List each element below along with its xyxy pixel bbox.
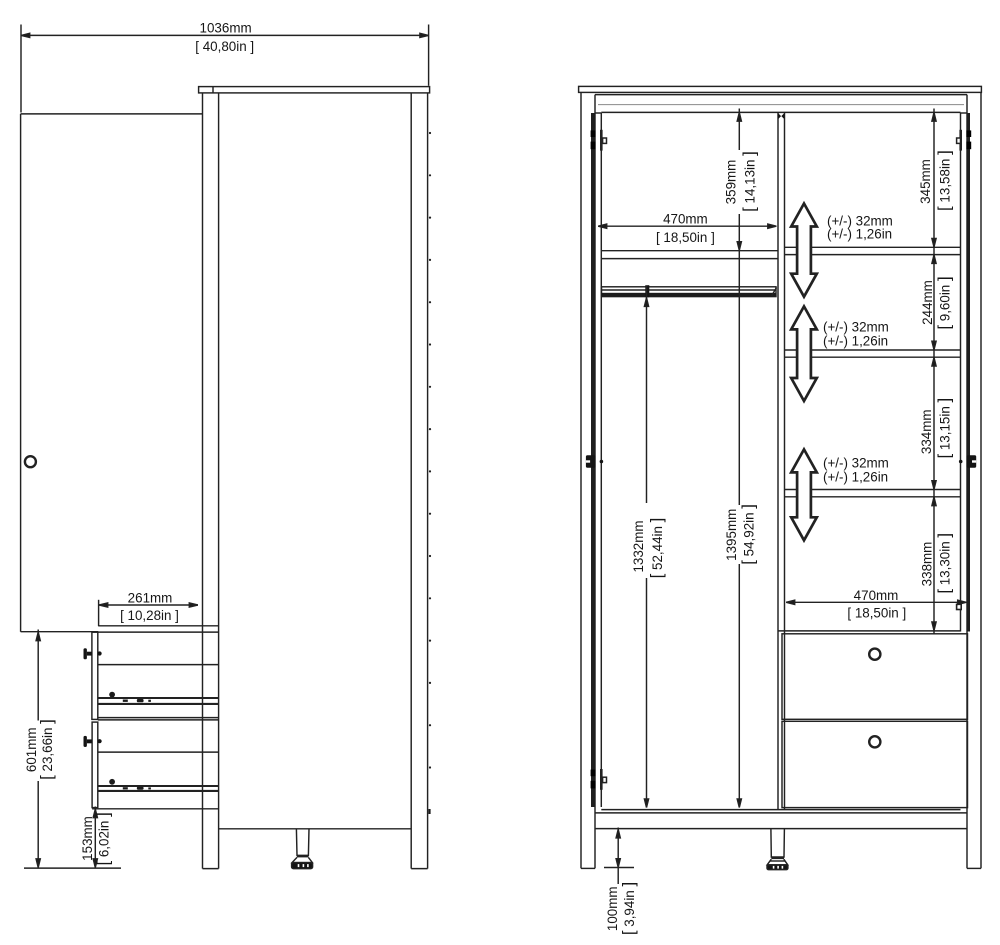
svg-text:[ 14,13in ]: [ 14,13in ] xyxy=(740,151,759,212)
svg-text:334mm: 334mm xyxy=(919,409,934,454)
svg-text:261mm: 261mm xyxy=(128,591,173,606)
svg-text:[ 13,15in ]: [ 13,15in ] xyxy=(934,398,953,459)
svg-text:[ 40,80in ]: [ 40,80in ] xyxy=(195,39,254,54)
svg-text:[ 13,30in ]: [ 13,30in ] xyxy=(935,533,954,594)
svg-text:601mm: 601mm xyxy=(24,727,39,772)
svg-text:[ 9,60in ]: [ 9,60in ] xyxy=(935,276,954,329)
svg-text:[ 3,94in ]: [ 3,94in ] xyxy=(619,882,638,935)
svg-text:470mm: 470mm xyxy=(854,588,899,603)
svg-text:(+/-) 1,26in: (+/-) 1,26in xyxy=(827,226,892,241)
svg-text:1395mm: 1395mm xyxy=(724,509,739,561)
svg-text:1036mm: 1036mm xyxy=(200,21,252,36)
svg-text:[ 52,44in ]: [ 52,44in ] xyxy=(647,518,666,579)
svg-text:[ 18,50in ]: [ 18,50in ] xyxy=(847,606,906,621)
svg-text:244mm: 244mm xyxy=(920,280,935,325)
svg-text:[ 54,92in ]: [ 54,92in ] xyxy=(739,504,758,565)
svg-text:(+/-) 1,26in: (+/-) 1,26in xyxy=(823,469,888,484)
svg-text:470mm: 470mm xyxy=(663,212,708,227)
svg-text:345mm: 345mm xyxy=(918,159,933,204)
svg-text:[ 23,66in ]: [ 23,66in ] xyxy=(37,719,56,780)
svg-text:[ 10,28in ]: [ 10,28in ] xyxy=(120,608,179,623)
svg-text:[ 6,02in ]: [ 6,02in ] xyxy=(94,812,113,865)
svg-text:(+/-) 32mm: (+/-) 32mm xyxy=(823,320,889,335)
svg-text:338mm: 338mm xyxy=(920,542,935,587)
svg-text:100mm: 100mm xyxy=(605,886,620,931)
svg-text:1332mm: 1332mm xyxy=(631,520,646,572)
svg-text:(+/-) 1,26in: (+/-) 1,26in xyxy=(823,334,888,349)
svg-text:359mm: 359mm xyxy=(723,160,738,205)
svg-text:153mm: 153mm xyxy=(80,816,95,861)
svg-text:[ 18,50in ]: [ 18,50in ] xyxy=(656,230,715,245)
svg-text:(+/-) 32mm: (+/-) 32mm xyxy=(823,455,889,470)
svg-text:[ 13,58in ]: [ 13,58in ] xyxy=(934,150,953,211)
